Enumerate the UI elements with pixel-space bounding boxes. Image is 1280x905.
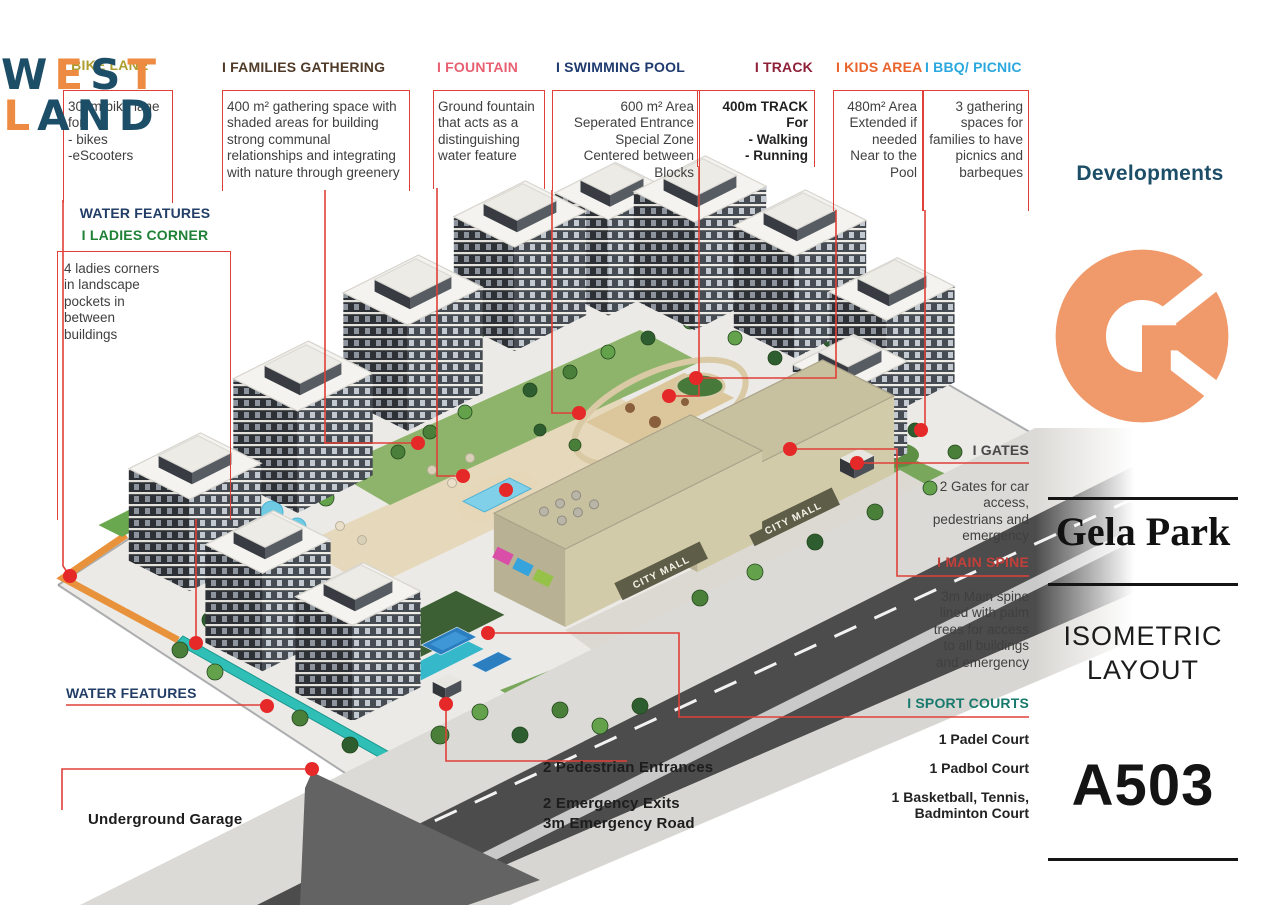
annotation-dot [499, 483, 513, 497]
sport-court-item: 1 Basketball, Tennis, Badminton Court [861, 789, 1029, 823]
label-ladies-corner-desc: 4 ladies corners in landscape pockets in… [64, 261, 204, 343]
label-swimming-pool-title: I SWIMMING POOL [556, 60, 685, 75]
label-gates-desc: 2 Gates for car access, pedestrians and … [905, 479, 1029, 545]
annotation-dot [662, 389, 676, 403]
sport-court-item: 1 Padbol Court [861, 760, 1029, 777]
label-main-spine-desc: 3m Main spine lined with palm trees for … [893, 589, 1029, 671]
label-emergency: 2 Emergency Exits 3m Emergency Road [543, 794, 695, 833]
westland-logo: WEST LAND [0, 54, 164, 136]
label-main-spine-title: I MAIN SPINE [895, 555, 1029, 570]
label-pedestrian-entrances: 2 Pedestrian Entrances [543, 760, 713, 777]
sport-courts-list: 1 Padel Court 1 Padbol Court 1 Basketbal… [861, 731, 1029, 834]
annotation-dot [914, 423, 928, 437]
annotation-dot [783, 442, 797, 456]
label-families-title: I FAMILIES GATHERING [222, 60, 385, 75]
label-sport-courts-title: I SPORT COURTS [885, 696, 1029, 711]
label-families-desc: 400 m² gathering space with shaded areas… [227, 99, 405, 181]
annotation-dot [439, 697, 453, 711]
divider-line [1048, 858, 1238, 861]
annotation-dot [260, 699, 274, 713]
divider-line [1048, 583, 1238, 586]
label-swimming-pool-desc: 600 m² Area Seperated Entrance Special Z… [556, 99, 694, 181]
label-fountain-desc: Ground fountain that acts as a distingui… [438, 99, 538, 165]
label-track-desc: 400m TRACK For - Walking - Running [700, 99, 808, 165]
annotation-dot [572, 406, 586, 420]
divider-line [1048, 497, 1238, 500]
label-ladies-corner-title: I LADIES CORNER [60, 228, 230, 243]
label-kids-area-desc: 480m² Area Extended if needed Near to th… [836, 99, 917, 181]
annotation-dot [689, 371, 703, 385]
sport-court-item: 1 Padel Court [861, 731, 1029, 748]
label-bbq-picnic-title: I BBQ/ PICNIC [925, 60, 1022, 75]
annotation-dot [189, 636, 203, 650]
label-gates-title: I GATES [905, 443, 1029, 458]
westland-logo-line2: LAND [0, 95, 164, 136]
slide-isometric-layout: CITY MALLCITY MALL I BIKE LANE 300m bike… [0, 0, 1280, 905]
label-bbq-picnic-desc: 3 gathering spaces for families to have … [926, 99, 1023, 181]
label-kids-area-title: I KIDS AREA [836, 60, 922, 75]
gela-park-g-mark-icon [1052, 246, 1232, 426]
annotation-dot [305, 762, 319, 776]
annotation-dot [63, 569, 77, 583]
westland-logo-subtitle: Developments [1068, 162, 1232, 186]
annotation-dot [456, 469, 470, 483]
annotation-dot [481, 626, 495, 640]
project-name: Gela Park [1040, 508, 1246, 555]
label-water-features-bottom: WATER FEATURES [66, 686, 197, 701]
label-water-features-left: WATER FEATURES [60, 206, 230, 221]
annotation-dot [850, 456, 864, 470]
label-underground-garage: Underground Garage [88, 812, 242, 829]
annotation-dot [411, 436, 425, 450]
view-title: ISOMETRIC LAYOUT [1048, 620, 1238, 688]
label-fountain-title: I FOUNTAIN [437, 60, 518, 75]
sheet-number: A503 [1048, 752, 1238, 819]
westland-logo-line1: WEST [0, 54, 164, 95]
label-track-title: I TRACK [697, 60, 813, 75]
